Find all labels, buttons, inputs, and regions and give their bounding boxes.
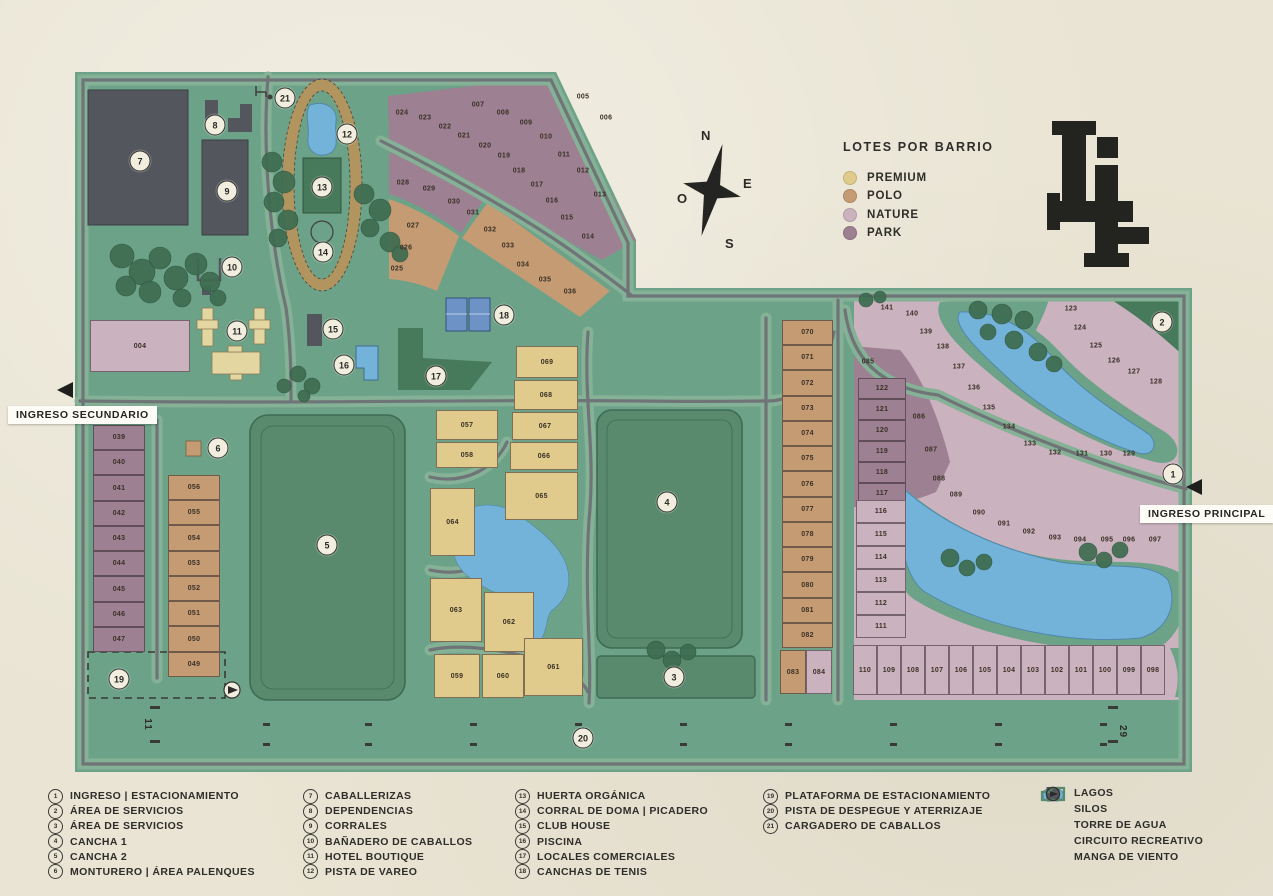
legend-item-16: 16PISCINA xyxy=(515,836,708,848)
misc-legend-label: CIRCUITO RECREATIVO xyxy=(1074,835,1203,847)
legend-item-number: 21 xyxy=(763,819,778,834)
compass-o: O xyxy=(677,191,687,206)
dependencias-tower xyxy=(205,100,218,120)
legend-item-number: 12 xyxy=(303,864,318,879)
misc-legend-label: TORRE DE AGUA xyxy=(1074,819,1167,831)
legend-item-label: HUERTA ORGÁNICA xyxy=(537,790,646,802)
cancha-2-field xyxy=(250,415,405,700)
legend-item-15: 15CLUB HOUSE xyxy=(515,820,708,832)
poi-legend-col-3: 13HUERTA ORGÁNICA14CORRAL DE DOMA | PICA… xyxy=(515,790,708,878)
caballerizas-building xyxy=(88,90,188,225)
misc-legend-item-silo: SILOS xyxy=(1040,802,1203,816)
corrales-building xyxy=(202,140,248,235)
legend-item-19: 19PLATAFORMA DE ESTACIONAMIENTO xyxy=(763,790,990,802)
misc-legend-label: MANGA DE VIENTO xyxy=(1074,851,1179,863)
legend-item-number: 11 xyxy=(303,849,318,864)
legend-item-number: 7 xyxy=(303,789,318,804)
legend-item-number: 1 xyxy=(48,789,63,804)
legend-item-number: 6 xyxy=(48,864,63,879)
legend-item-label: CABALLERIZAS xyxy=(325,790,411,802)
legend-item-label: ÁREA DE SERVICIOS xyxy=(70,820,184,832)
legend-item-number: 15 xyxy=(515,819,530,834)
legend-item-number: 13 xyxy=(515,789,530,804)
legend-item-4: 4CANCHA 1 xyxy=(48,836,255,848)
premium-swatch xyxy=(843,171,857,185)
legend-item-10: 10BAÑADERO DE CABALLOS xyxy=(303,836,472,848)
park-label: PARK xyxy=(867,227,902,239)
legend-item-number: 3 xyxy=(48,819,63,834)
windsock-icon xyxy=(224,682,240,698)
legend-item-14: 14CORRAL DE DOMA | PICADERO xyxy=(515,805,708,817)
legend-item-label: HOTEL BOUTIQUE xyxy=(325,851,424,863)
legend-item-8: 8DEPENDENCIAS xyxy=(303,805,472,817)
misc-legend-item-windsock: MANGA DE VIENTO xyxy=(1040,850,1203,864)
misc-legend-label: SILOS xyxy=(1074,803,1108,815)
legend-item-17: 17LOCALES COMERCIALES xyxy=(515,851,708,863)
legend-item-11: 11HOTEL BOUTIQUE xyxy=(303,851,472,863)
poi-legend-col-1: 1INGRESO | ESTACIONAMIENTO2ÁREA DE SERVI… xyxy=(48,790,255,878)
legend-item-number: 2 xyxy=(48,804,63,819)
poi-legend-col-2: 7CABALLERIZAS8DEPENDENCIAS9CORRALES10BAÑ… xyxy=(303,790,472,878)
barrio-item-nature: NATURE xyxy=(843,207,994,222)
legend-item-label: CORRALES xyxy=(325,820,387,832)
legend-item-number: 20 xyxy=(763,804,778,819)
legend-item-6: 6MONTURERO | ÁREA PALENQUES xyxy=(48,866,255,878)
legend-item-12: 12PISTA DE VAREO xyxy=(303,866,472,878)
arrow-ingreso-secundario xyxy=(57,382,73,398)
compass-s: S xyxy=(725,236,734,251)
legend-item-number: 8 xyxy=(303,804,318,819)
legend-item-label: INGRESO | ESTACIONAMIENTO xyxy=(70,790,239,802)
nature-label: NATURE xyxy=(867,209,919,221)
legend-item-label: ÁREA DE SERVICIOS xyxy=(70,805,184,817)
legend-item-3: 3ÁREA DE SERVICIOS xyxy=(48,820,255,832)
legend-item-number: 9 xyxy=(303,819,318,834)
legend-item-5: 5CANCHA 2 xyxy=(48,851,255,863)
monturero-square xyxy=(186,441,201,456)
compass-e: E xyxy=(743,176,752,191)
barrio-item-premium: PREMIUM xyxy=(843,170,994,185)
compass-n: N xyxy=(701,128,710,143)
nature-swatch xyxy=(843,208,857,222)
barrio-legend-title: LOTES POR BARRIO xyxy=(843,140,994,154)
legend-item-number: 4 xyxy=(48,834,63,849)
legend-item-label: BAÑADERO DE CABALLOS xyxy=(325,836,472,848)
legend-item-label: PISCINA xyxy=(537,836,582,848)
legend-item-number: 14 xyxy=(515,804,530,819)
legend-item-label: CARGADERO DE CABALLOS xyxy=(785,820,941,832)
legend-item-number: 17 xyxy=(515,849,530,864)
legend-item-label: PLATAFORMA DE ESTACIONAMIENTO xyxy=(785,790,990,802)
legend-item-13: 13HUERTA ORGÁNICA xyxy=(515,790,708,802)
polo-swatch xyxy=(843,189,857,203)
misc-legend-item-water-tower: TORRE DE AGUA xyxy=(1040,818,1203,832)
legend-item-7: 7CABALLERIZAS xyxy=(303,790,472,802)
misc-legend-item-circuit: CIRCUITO RECREATIVO xyxy=(1040,834,1203,848)
club-house-building xyxy=(307,314,322,346)
legend-item-label: CLUB HOUSE xyxy=(537,820,610,832)
legend-item-label: CANCHA 1 xyxy=(70,836,127,848)
legend-item-9: 9CORRALES xyxy=(303,820,472,832)
legend-item-label: CANCHA 2 xyxy=(70,851,127,863)
legend-item-number: 10 xyxy=(303,834,318,849)
legend-item-21: 21CARGADERO DE CABALLOS xyxy=(763,820,990,832)
legend-item-number: 16 xyxy=(515,834,530,849)
masterplan-page: N E O S 00400500600700800901001101201301… xyxy=(0,0,1273,896)
legend-item-label: PISTA DE DESPEGUE Y ATERRIZAJE xyxy=(785,805,983,817)
legend-item-label: CANCHAS DE TENIS xyxy=(537,866,647,878)
legend-item-label: PISTA DE VAREO xyxy=(325,866,417,878)
park-swatch xyxy=(843,226,857,240)
legend-item-20: 20PISTA DE DESPEGUE Y ATERRIZAJE xyxy=(763,805,990,817)
barrio-item-park: PARK xyxy=(843,226,994,241)
legend-item-number: 5 xyxy=(48,849,63,864)
legend-item-number: 19 xyxy=(763,789,778,804)
legend-item-label: LOCALES COMERCIALES xyxy=(537,851,675,863)
legend-item-1: 1INGRESO | ESTACIONAMIENTO xyxy=(48,790,255,802)
compass-rose: N E O S xyxy=(655,120,775,260)
legend-item-2: 2ÁREA DE SERVICIOS xyxy=(48,805,255,817)
huerta-organica-shape xyxy=(303,158,341,213)
poi-legend-col-4: 19PLATAFORMA DE ESTACIONAMIENTO20PISTA D… xyxy=(763,790,990,832)
misc-legend-label: LAGOS xyxy=(1074,787,1113,799)
barrio-item-polo: POLO xyxy=(843,189,994,204)
track-lake xyxy=(307,104,336,156)
brand-logo xyxy=(1045,115,1165,290)
legend-item-label: DEPENDENCIAS xyxy=(325,805,413,817)
legend-item-label: MONTURERO | ÁREA PALENQUES xyxy=(70,866,255,878)
legend-item-18: 18CANCHAS DE TENIS xyxy=(515,866,708,878)
legend-item-label: CORRAL DE DOMA | PICADERO xyxy=(537,805,708,817)
polo-label: POLO xyxy=(867,190,903,202)
misc-legend: LAGOSSILOSTORRE DE AGUACIRCUITO RECREATI… xyxy=(1040,786,1203,864)
barrio-legend: LOTES POR BARRIO PREMIUMPOLONATUREPARK xyxy=(843,140,994,244)
legend-item-number: 18 xyxy=(515,864,530,879)
cancha-1-field xyxy=(597,410,742,648)
premium-label: PREMIUM xyxy=(867,172,927,184)
